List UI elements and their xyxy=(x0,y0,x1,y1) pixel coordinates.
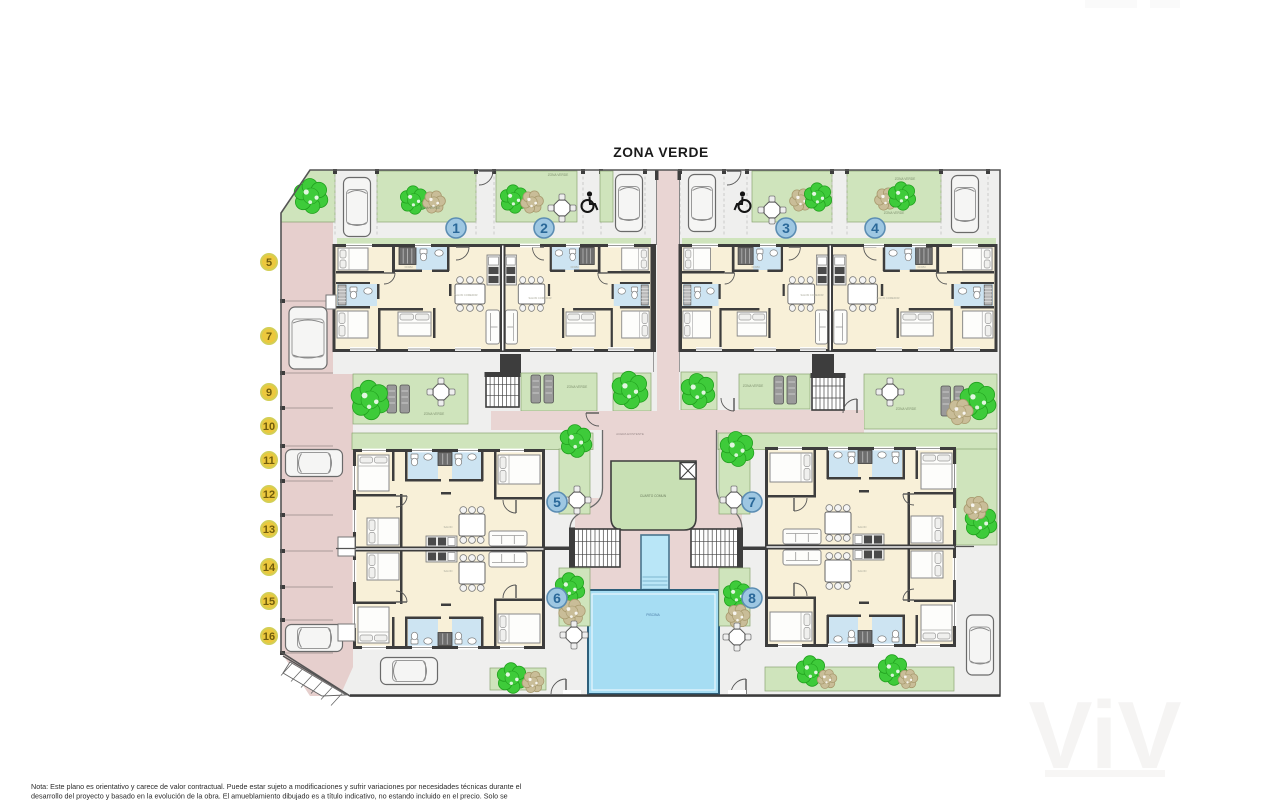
svg-text:11: 11 xyxy=(263,455,275,467)
svg-text:DORM.: DORM. xyxy=(571,265,580,269)
svg-text:DORM.: DORM. xyxy=(918,265,927,269)
svg-text:SALON COMEDOR: SALON COMEDOR xyxy=(454,293,477,297)
svg-text:ZONA VERDE: ZONA VERDE xyxy=(895,177,916,181)
svg-text:ZONA VERDE: ZONA VERDE xyxy=(884,211,905,215)
svg-text:ZONA VERDE: ZONA VERDE xyxy=(613,145,708,160)
svg-text:DORM.: DORM. xyxy=(405,265,414,269)
svg-text:ZONA VERDE: ZONA VERDE xyxy=(420,206,441,210)
svg-text:10: 10 xyxy=(263,421,275,433)
svg-text:desarrollo del proyecto y basa: desarrollo del proyecto y basado en la e… xyxy=(31,792,508,800)
svg-text:4: 4 xyxy=(871,220,879,236)
svg-text:9: 9 xyxy=(266,387,272,399)
svg-text:1: 1 xyxy=(452,220,460,236)
svg-text:SALON: SALON xyxy=(858,569,867,573)
svg-text:PISCINA: PISCINA xyxy=(646,613,660,617)
svg-text:SALON COMEDOR: SALON COMEDOR xyxy=(528,296,551,300)
svg-text:5: 5 xyxy=(266,257,272,269)
svg-text:SALON: SALON xyxy=(858,525,867,529)
svg-text:13: 13 xyxy=(263,524,275,536)
svg-text:14: 14 xyxy=(263,562,276,574)
svg-text:15: 15 xyxy=(263,596,275,608)
svg-text:DORM.: DORM. xyxy=(752,265,761,269)
svg-text:ZONA VERDE: ZONA VERDE xyxy=(424,412,445,416)
svg-text:ZONA VERDE: ZONA VERDE xyxy=(896,407,917,411)
svg-text:SALON COMEDOR: SALON COMEDOR xyxy=(800,293,823,297)
svg-text:5: 5 xyxy=(553,494,561,510)
svg-text:SALON COMEDOR: SALON COMEDOR xyxy=(876,296,899,300)
svg-text:SALON: SALON xyxy=(444,525,453,529)
svg-text:7: 7 xyxy=(266,331,272,343)
svg-text:2: 2 xyxy=(540,220,548,236)
svg-text:Nota: Este plano es orientativ: Nota: Este plano es orientativo y carece… xyxy=(31,782,522,791)
svg-text:ACERA EXISTENTE: ACERA EXISTENTE xyxy=(616,432,644,436)
svg-text:ZONA VERDE: ZONA VERDE xyxy=(548,173,569,177)
svg-text:16: 16 xyxy=(263,631,275,643)
svg-text:8: 8 xyxy=(748,590,756,606)
svg-text:12: 12 xyxy=(263,489,275,501)
svg-text:3: 3 xyxy=(782,220,790,236)
svg-text:ZONA VERDE: ZONA VERDE xyxy=(743,384,764,388)
svg-text:7: 7 xyxy=(748,494,756,510)
svg-text:6: 6 xyxy=(553,590,561,606)
svg-text:ZONA VERDE: ZONA VERDE xyxy=(567,385,588,389)
svg-text:CUARTO COMUN: CUARTO COMUN xyxy=(640,494,667,498)
svg-text:SALON: SALON xyxy=(444,569,453,573)
